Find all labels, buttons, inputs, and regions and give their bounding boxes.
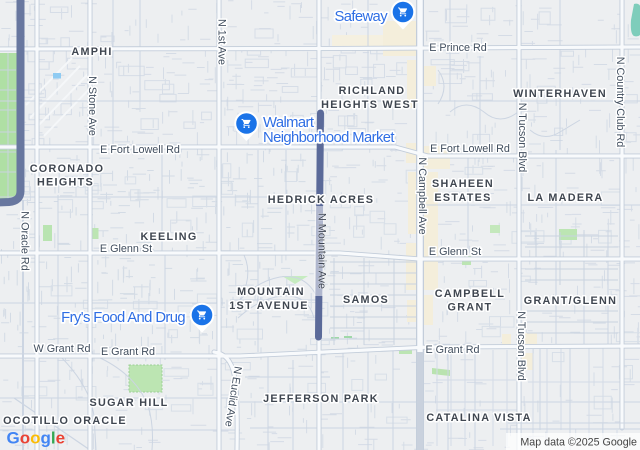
svg-text:W Grant Rd: W Grant Rd [34,343,91,355]
svg-text:N Country Club Rd: N Country Club Rd [614,57,626,148]
svg-text:E Glenn St: E Glenn St [429,246,481,258]
svg-text:E Glenn St: E Glenn St [100,243,152,255]
svg-text:N Campbell Ave: N Campbell Ave [416,157,428,234]
svg-text:N Mountain Ave: N Mountain Ave [316,213,328,289]
svg-text:LA MADERA: LA MADERA [527,192,603,204]
svg-text:OCOTILLO ORACLE: OCOTILLO ORACLE [3,415,127,427]
svg-text:E Prince Rd: E Prince Rd [429,42,487,54]
svg-text:E Grant Rd: E Grant Rd [101,346,155,358]
svg-text:CORONADO: CORONADO [30,163,105,175]
svg-text:E Fort Lowell Rd: E Fort Lowell Rd [430,143,510,155]
svg-text:GRANT: GRANT [448,302,493,314]
svg-text:SAMOS: SAMOS [343,294,389,306]
svg-text:N Oracle Rd: N Oracle Rd [19,211,31,270]
svg-text:Fry's Food And Drug: Fry's Food And Drug [61,310,185,326]
svg-text:Walmart: Walmart [263,115,314,131]
svg-text:HEIGHTS: HEIGHTS [37,177,94,189]
svg-text:GRANT/GLENN: GRANT/GLENN [524,295,617,307]
svg-text:ESTATES: ESTATES [434,192,491,204]
svg-text:KEELING: KEELING [140,231,197,243]
svg-text:WINTERHAVEN: WINTERHAVEN [513,88,607,100]
svg-text:N 1st Ave: N 1st Ave [216,19,228,65]
svg-text:Safeway: Safeway [334,9,388,25]
svg-text:E Grant Rd: E Grant Rd [425,344,479,356]
svg-text:RICHLAND: RICHLAND [339,85,406,97]
svg-text:N Tucson Blvd: N Tucson Blvd [515,311,527,381]
svg-text:1ST AVENUE: 1ST AVENUE [229,300,309,312]
svg-text:MOUNTAIN: MOUNTAIN [237,286,305,298]
svg-text:SHAHEEN: SHAHEEN [432,178,494,190]
svg-text:Google: Google [7,429,66,448]
svg-text:N Tucson Blvd: N Tucson Blvd [516,103,528,173]
svg-text:CATALINA VISTA: CATALINA VISTA [426,412,531,424]
svg-text:E Fort Lowell Rd: E Fort Lowell Rd [100,144,180,156]
svg-text:N Stone Ave: N Stone Ave [86,76,98,136]
svg-text:JEFFERSON PARK: JEFFERSON PARK [263,393,379,405]
svg-text:CAMPBELL: CAMPBELL [435,288,505,300]
svg-text:Map data ©2025 Google: Map data ©2025 Google [520,437,637,449]
svg-text:HEIGHTS WEST: HEIGHTS WEST [321,99,419,111]
svg-text:Neighborhood Market: Neighborhood Market [263,130,394,146]
svg-text:HEDRICK ACRES: HEDRICK ACRES [268,194,374,206]
svg-text:SUGAR HILL: SUGAR HILL [90,397,169,409]
svg-text:AMPHI: AMPHI [71,46,112,58]
